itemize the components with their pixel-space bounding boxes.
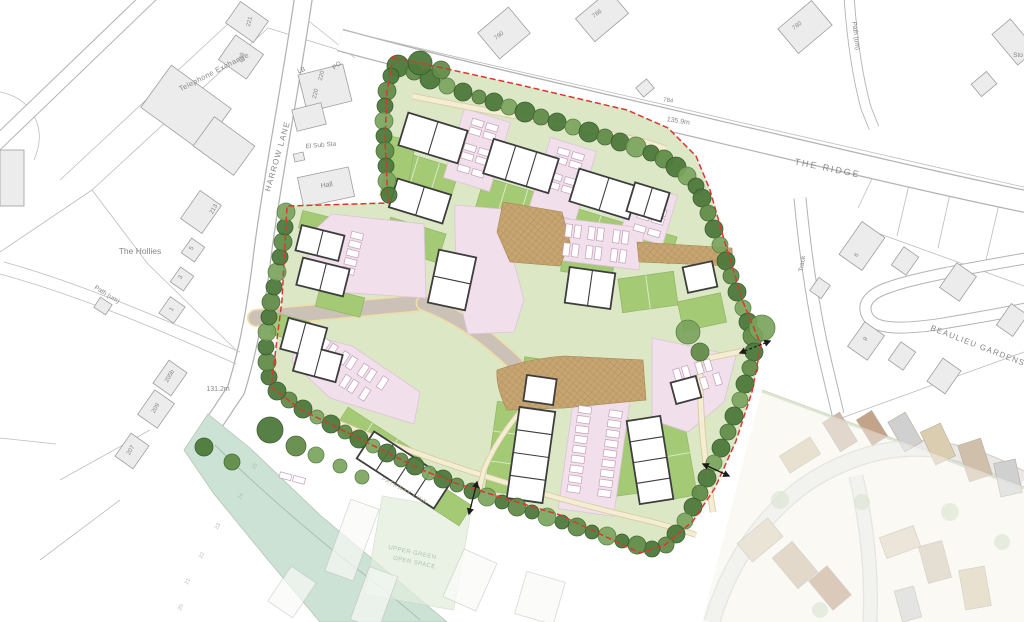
- house-block-east-2: [683, 261, 718, 293]
- house-block-south-small: [523, 375, 556, 405]
- label-the-hollies: The Hollies: [119, 246, 162, 256]
- site-plan-canvas: Telephone Exchange HARROW LANE THE RIDGE…: [0, 0, 1024, 622]
- spot-height-west: 131.2m: [206, 386, 230, 393]
- label-sto-clipped: Sto: [1013, 52, 1023, 59]
- house-block-east-1: [565, 267, 616, 309]
- site-plan-image: Telephone Exchange HARROW LANE THE RIDGE…: [0, 0, 1024, 622]
